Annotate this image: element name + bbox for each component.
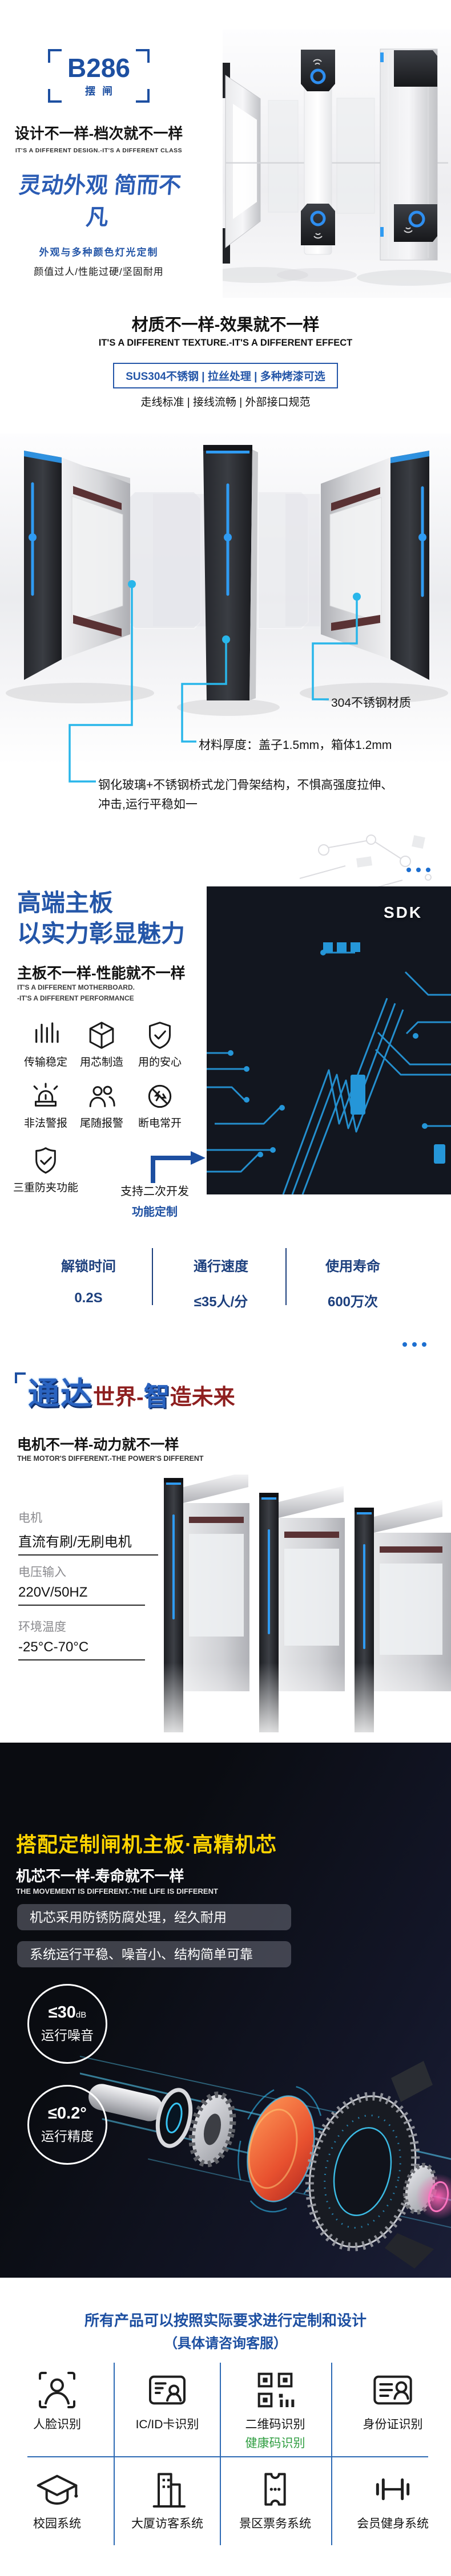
precision-badge: ≤0.2° 运行精度 bbox=[27, 2085, 107, 2165]
stat-divider bbox=[152, 1248, 153, 1305]
model-number: B286 bbox=[48, 49, 150, 81]
stat-divider bbox=[285, 1248, 287, 1305]
service-building-visitor: 大厦访客系统 bbox=[115, 2466, 220, 2532]
movement-subtitle-en: THE MOVEMENT IS DIFFERENT.-THE LIFE IS D… bbox=[16, 1887, 218, 1895]
motor-title: 电机不一样-动力就不一样 bbox=[17, 1433, 179, 1454]
qr-code-icon bbox=[252, 2367, 298, 2413]
circuit-board-panel bbox=[207, 886, 451, 1194]
hero-feature-highlight: 外观与多种颜色灯光定制 bbox=[10, 244, 187, 258]
service-gym-membership: 会员健身系统 bbox=[340, 2466, 445, 2532]
grid-divider-v bbox=[220, 2363, 221, 2545]
bracket-corner-icon bbox=[136, 49, 150, 63]
board-subtitle: 主板不一样-性能就不一样 bbox=[17, 962, 186, 983]
power-off-circle-icon bbox=[144, 1080, 176, 1113]
ic-card-icon bbox=[144, 2367, 190, 2413]
footer-note-1: 所有产品可以按照实际要求进行定制和设计 bbox=[0, 2309, 451, 2330]
cube-icon bbox=[86, 1019, 118, 1052]
id-card-icon bbox=[370, 2367, 416, 2413]
bracket-icon bbox=[15, 1372, 26, 1383]
movement-subtitle: 机芯不一样-寿命就不一样 bbox=[16, 1865, 184, 1886]
hero-text-block: B286 摆闸 设计不一样-档次就不一样 IT'S A DIFFERENT DE… bbox=[10, 49, 187, 278]
stat-pass-speed: 通行速度 ≤35人/分 bbox=[158, 1255, 284, 1310]
board-title: 高端主板 以实力彰显魅力 bbox=[17, 888, 185, 949]
callout-thickness: 材料厚度：盖子1.5mm，箱体1.2mm bbox=[199, 736, 392, 753]
bracket-corner-icon bbox=[136, 89, 150, 103]
dev-note: 支持二次开发 功能定制 bbox=[112, 1182, 198, 1219]
texture-subtitle: 走线标准 | 接线流畅 | 外部接口规范 bbox=[0, 394, 451, 409]
callout-material: 304不锈钢材质 bbox=[331, 694, 411, 711]
movement-title: 搭配定制闸机主板·高精机芯 bbox=[16, 1828, 277, 1858]
shield-check-icon bbox=[144, 1019, 176, 1052]
hero-turnstile-photo bbox=[223, 30, 451, 298]
spec-voltage: 电压输入 220V/50HZ bbox=[18, 1563, 145, 1606]
service-ticketing: 景区票务系统 bbox=[223, 2466, 328, 2532]
movement-section: 搭配定制闸机主板·高精机芯 机芯不一样-寿命就不一样 THE MOVEMENT … bbox=[0, 1743, 451, 2278]
stat-unlock-time: 解锁时间 0.2S bbox=[26, 1255, 151, 1306]
spec-motor: 电机 直流有刷/无刷电机 bbox=[18, 1509, 158, 1556]
decor-dots bbox=[402, 1339, 432, 1350]
bracket-corner-icon bbox=[48, 49, 62, 63]
motor-title-en: THE MOTOR'S DIFFERENT.-THE POWER'S DIFFE… bbox=[17, 1455, 204, 1463]
two-people-icon bbox=[86, 1080, 118, 1113]
hero-title: 设计不一样-档次就不一样 bbox=[10, 122, 187, 143]
stat-lifespan: 使用寿命 600万次 bbox=[290, 1255, 416, 1310]
dev-arrow-icon bbox=[146, 1149, 209, 1185]
model-type: 摆闸 bbox=[48, 83, 150, 98]
noise-badge: ≤30dB 运行噪音 bbox=[27, 1984, 107, 2064]
product-detail-page: B286 摆闸 设计不一样-档次就不一样 IT'S A DIFFERENT DE… bbox=[0, 0, 451, 2576]
callout-structure: 钢化玻璃+不锈钢桥式龙门骨架结构，不惧高强度拉伸、 冲击,运行平稳如一 bbox=[98, 776, 446, 815]
siren-icon bbox=[30, 1080, 62, 1113]
texture-title-en: IT'S A DIFFERENT TEXTURE.-IT'S A DIFFERE… bbox=[0, 338, 451, 349]
service-face-recognition: 人脸识别 bbox=[5, 2367, 110, 2432]
graduation-cap-icon bbox=[34, 2466, 80, 2512]
feature-transmission: 传输稳定 bbox=[14, 1019, 77, 1069]
feature-chip: 用芯制造 bbox=[70, 1019, 133, 1069]
face-recognition-icon bbox=[34, 2367, 80, 2413]
dumbbell-icon bbox=[370, 2466, 416, 2512]
movement-pill-2: 系统运行平稳、噪音小、结构简单可靠 bbox=[17, 1941, 291, 1967]
spec-temperature: 环境温度 -25°C-70°C bbox=[18, 1618, 145, 1660]
brand-slogan: 通达 世界- 智 造未来 bbox=[15, 1372, 235, 1409]
feature-assurance: 用的安心 bbox=[128, 1019, 191, 1069]
footer-note-2: （具体请咨询客服） bbox=[0, 2332, 451, 2352]
feature-alarm: 非法警报 bbox=[14, 1080, 77, 1130]
hero-feature-detail: 颜值过人/性能过硬/坚固耐用 bbox=[10, 264, 187, 278]
feature-power-open: 断电常开 bbox=[128, 1080, 191, 1130]
service-qr-code: 二维码识别 健康码识别 bbox=[223, 2367, 328, 2451]
hero-slogan: 灵动外观 简而不凡 bbox=[7, 168, 190, 232]
grid-divider-h bbox=[27, 2456, 428, 2457]
model-badge: B286 摆闸 bbox=[48, 49, 150, 103]
motor-exploded-photo bbox=[80, 1988, 451, 2273]
ticket-icon bbox=[252, 2466, 298, 2512]
signal-bars-icon bbox=[30, 1019, 62, 1052]
health-code-label: 健康码识别 bbox=[223, 2434, 328, 2451]
grid-divider-v bbox=[331, 2363, 332, 2545]
sdk-label: SDK bbox=[384, 904, 422, 922]
service-campus: 校园系统 bbox=[5, 2466, 110, 2532]
hero-title-en: IT'S A DIFFERENT DESIGN.-IT'S A DIFFEREN… bbox=[10, 147, 187, 154]
bracket-corner-icon bbox=[48, 89, 62, 103]
turnstile-angle-photo bbox=[163, 1475, 451, 1745]
texture-title: 材质不一样-效果就不一样 bbox=[0, 311, 451, 335]
texture-badge-wrap: SUS304不锈钢 | 拉丝处理 | 多种烤漆可选 bbox=[0, 363, 451, 388]
feature-anti-pinch: 三重防夹功能 bbox=[9, 1144, 83, 1194]
material-badge: SUS304不锈钢 | 拉丝处理 | 多种烤漆可选 bbox=[113, 363, 338, 388]
service-ic-id-card: IC/ID卡识别 bbox=[115, 2367, 220, 2432]
turnstile-front-photo bbox=[0, 434, 451, 833]
board-subtitle-en: IT'S A DIFFERENT MOTHERBOARD. -IT'S A DI… bbox=[17, 982, 135, 1004]
service-id-card: 身份证识别 bbox=[340, 2367, 445, 2432]
movement-pill-1: 机芯采用防锈防腐处理，经久耐用 bbox=[17, 1904, 291, 1930]
shield-check-round-icon bbox=[30, 1144, 62, 1177]
feature-tailgating: 尾随报警 bbox=[70, 1080, 133, 1130]
decor-dots bbox=[406, 865, 436, 875]
building-icon bbox=[144, 2466, 190, 2512]
